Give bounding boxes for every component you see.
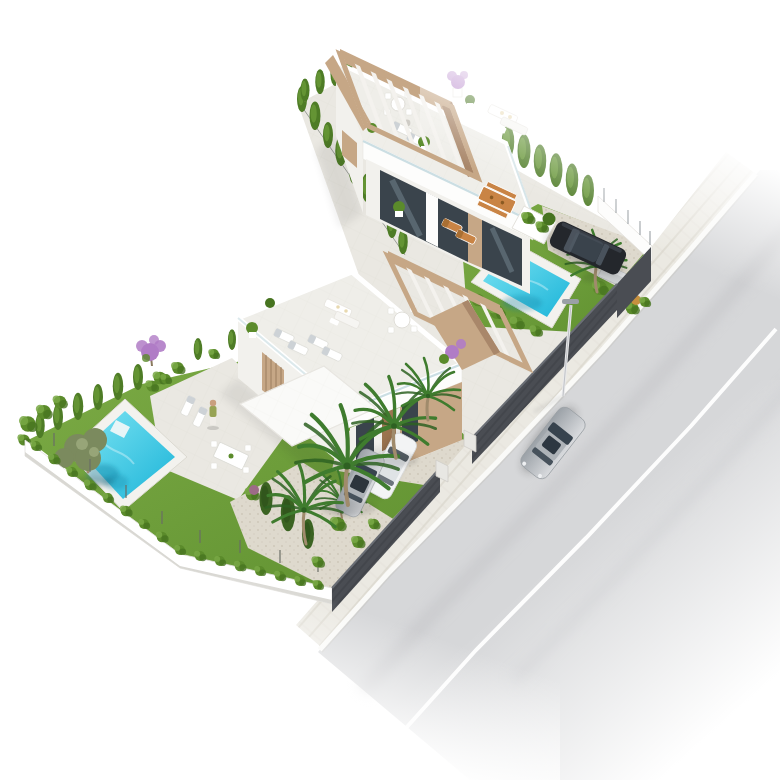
roof-round-table <box>394 312 410 328</box>
road-fade-top <box>420 60 780 340</box>
road-fade-bottom <box>230 560 560 780</box>
render-canvas <box>0 0 780 780</box>
villa-aerial-render <box>0 0 780 780</box>
purple-blossom-tree <box>136 335 166 366</box>
